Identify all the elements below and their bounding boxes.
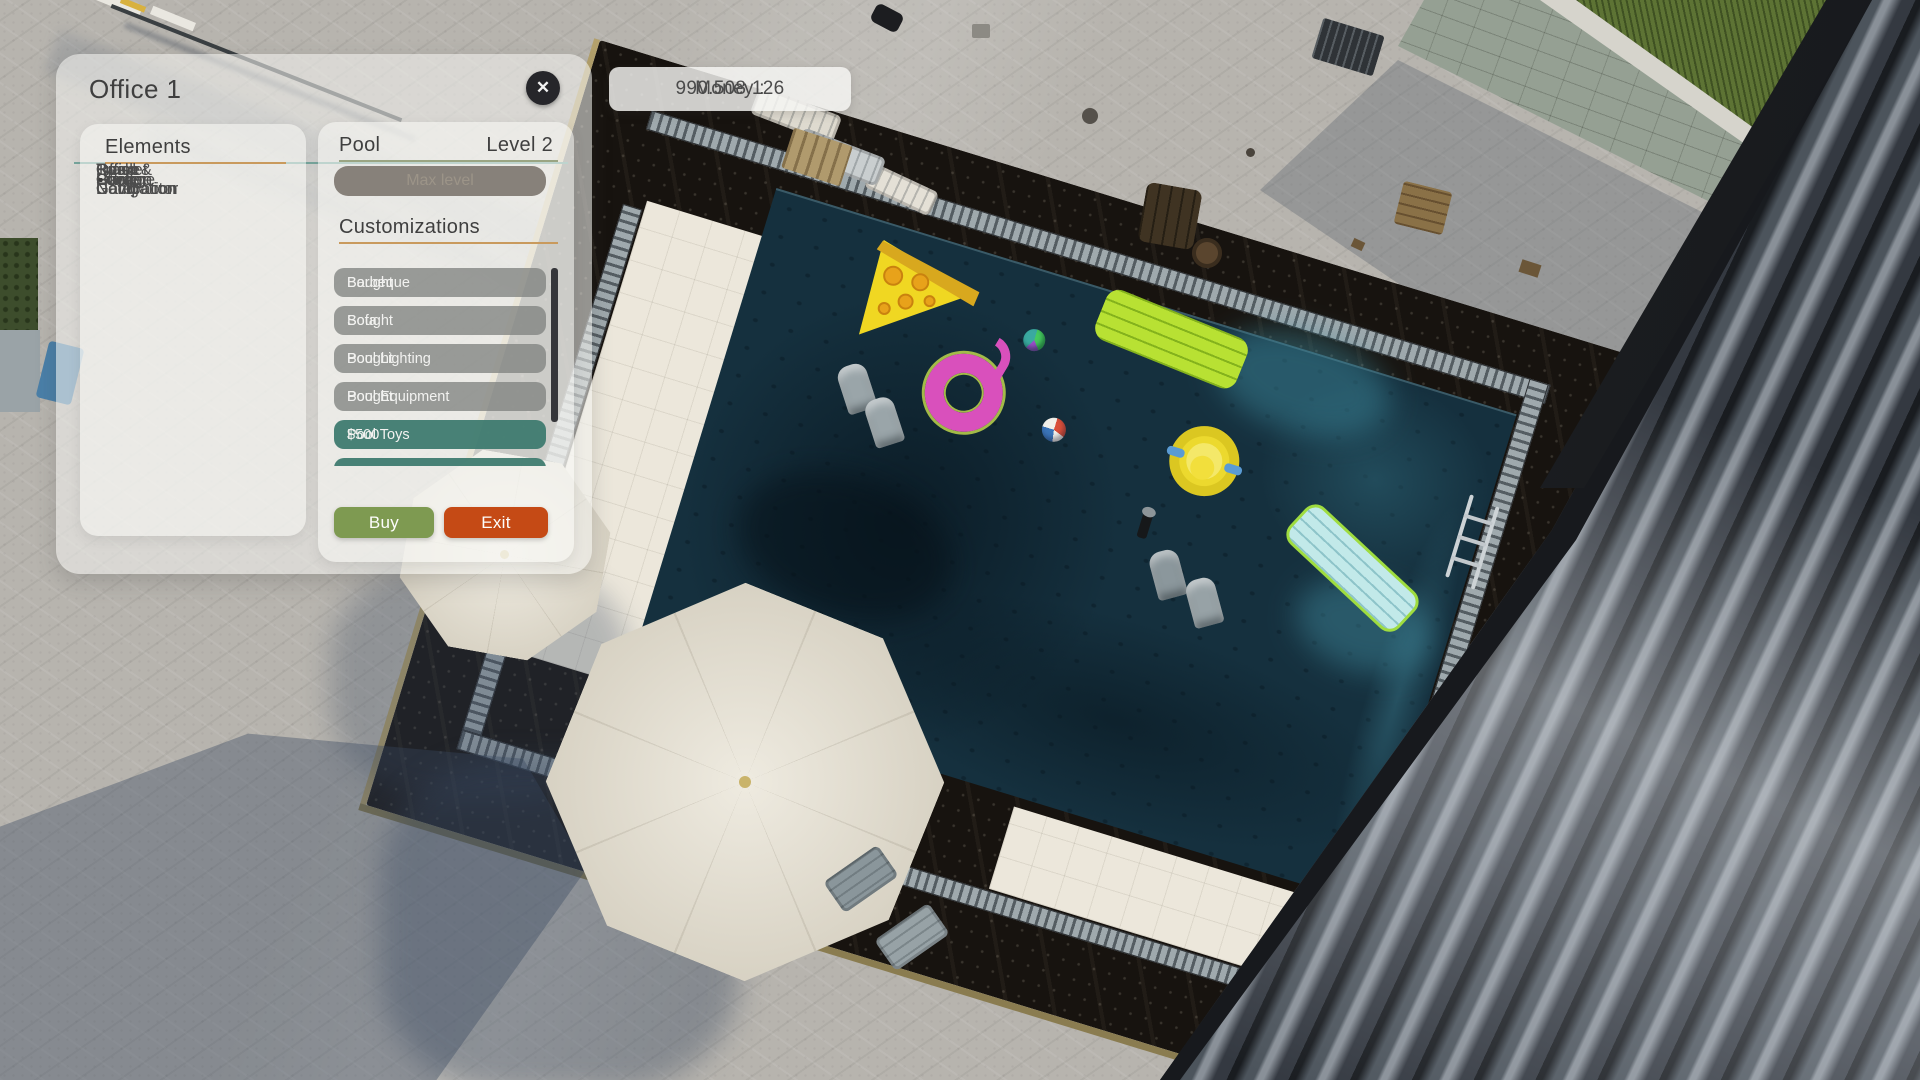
wooden-barrel <box>1137 182 1203 251</box>
umbrella-pole <box>739 776 751 788</box>
customization-row-pool-lighting[interactable]: Pool LightingBought <box>334 344 546 373</box>
debris <box>1246 148 1255 157</box>
game-screen: Money : 990.508.126 Office 1 ✕ Elements … <box>0 0 1920 1080</box>
elements-header: Elements <box>105 136 191 159</box>
pool-detail-panel: Pool Level 2 Max level Customizations Ba… <box>318 122 574 562</box>
customizations-scrollbar[interactable] <box>551 268 558 422</box>
customization-row-pool-toys[interactable]: Pool Toys$500 <box>334 420 546 449</box>
customizations-header: Customizations <box>339 216 480 239</box>
pizza-float <box>853 238 975 336</box>
detail-header: Pool <box>339 134 380 157</box>
water-lounger <box>1147 547 1188 601</box>
office-window: Office 1 ✕ Elements •Office •Garage •Tra… <box>56 54 592 574</box>
customizations-list: BarbequeBought SofaBought Pool LightingB… <box>334 260 554 466</box>
customization-row-sofa[interactable]: SofaBought <box>334 306 546 335</box>
water-lounger <box>862 394 905 449</box>
gray-panel-prop <box>0 330 40 412</box>
water-lounger <box>1183 575 1224 629</box>
money-value: 990.508.126 <box>676 78 785 100</box>
customization-row-partial[interactable]: Pool …$10.000 <box>334 458 546 466</box>
manhole <box>1082 108 1098 124</box>
customizations-rule <box>339 242 558 244</box>
elements-panel: Elements •Office •Garage •Trash Compacto… <box>80 124 306 536</box>
customization-row-pool-equipment[interactable]: Pool EquipmentBought <box>334 382 546 411</box>
customization-row-barbeque[interactable]: BarbequeBought <box>334 268 546 297</box>
exit-button[interactable]: Exit <box>444 507 548 538</box>
window-title: Office 1 <box>89 74 181 105</box>
duck-float <box>1161 417 1248 504</box>
close-button[interactable]: ✕ <box>526 71 560 105</box>
buy-button[interactable]: Buy <box>334 507 434 538</box>
close-icon: ✕ <box>536 78 550 98</box>
green-ball <box>1021 326 1048 353</box>
hedge <box>0 238 38 334</box>
small-box <box>972 24 990 38</box>
detail-rule <box>339 160 558 162</box>
detail-level: Level 2 <box>486 134 553 157</box>
money-panel: Money : 990.508.126 <box>609 67 851 111</box>
barrel-top <box>1192 238 1222 268</box>
beach-ball <box>1039 415 1069 445</box>
max-level-button[interactable]: Max level <box>334 166 546 196</box>
